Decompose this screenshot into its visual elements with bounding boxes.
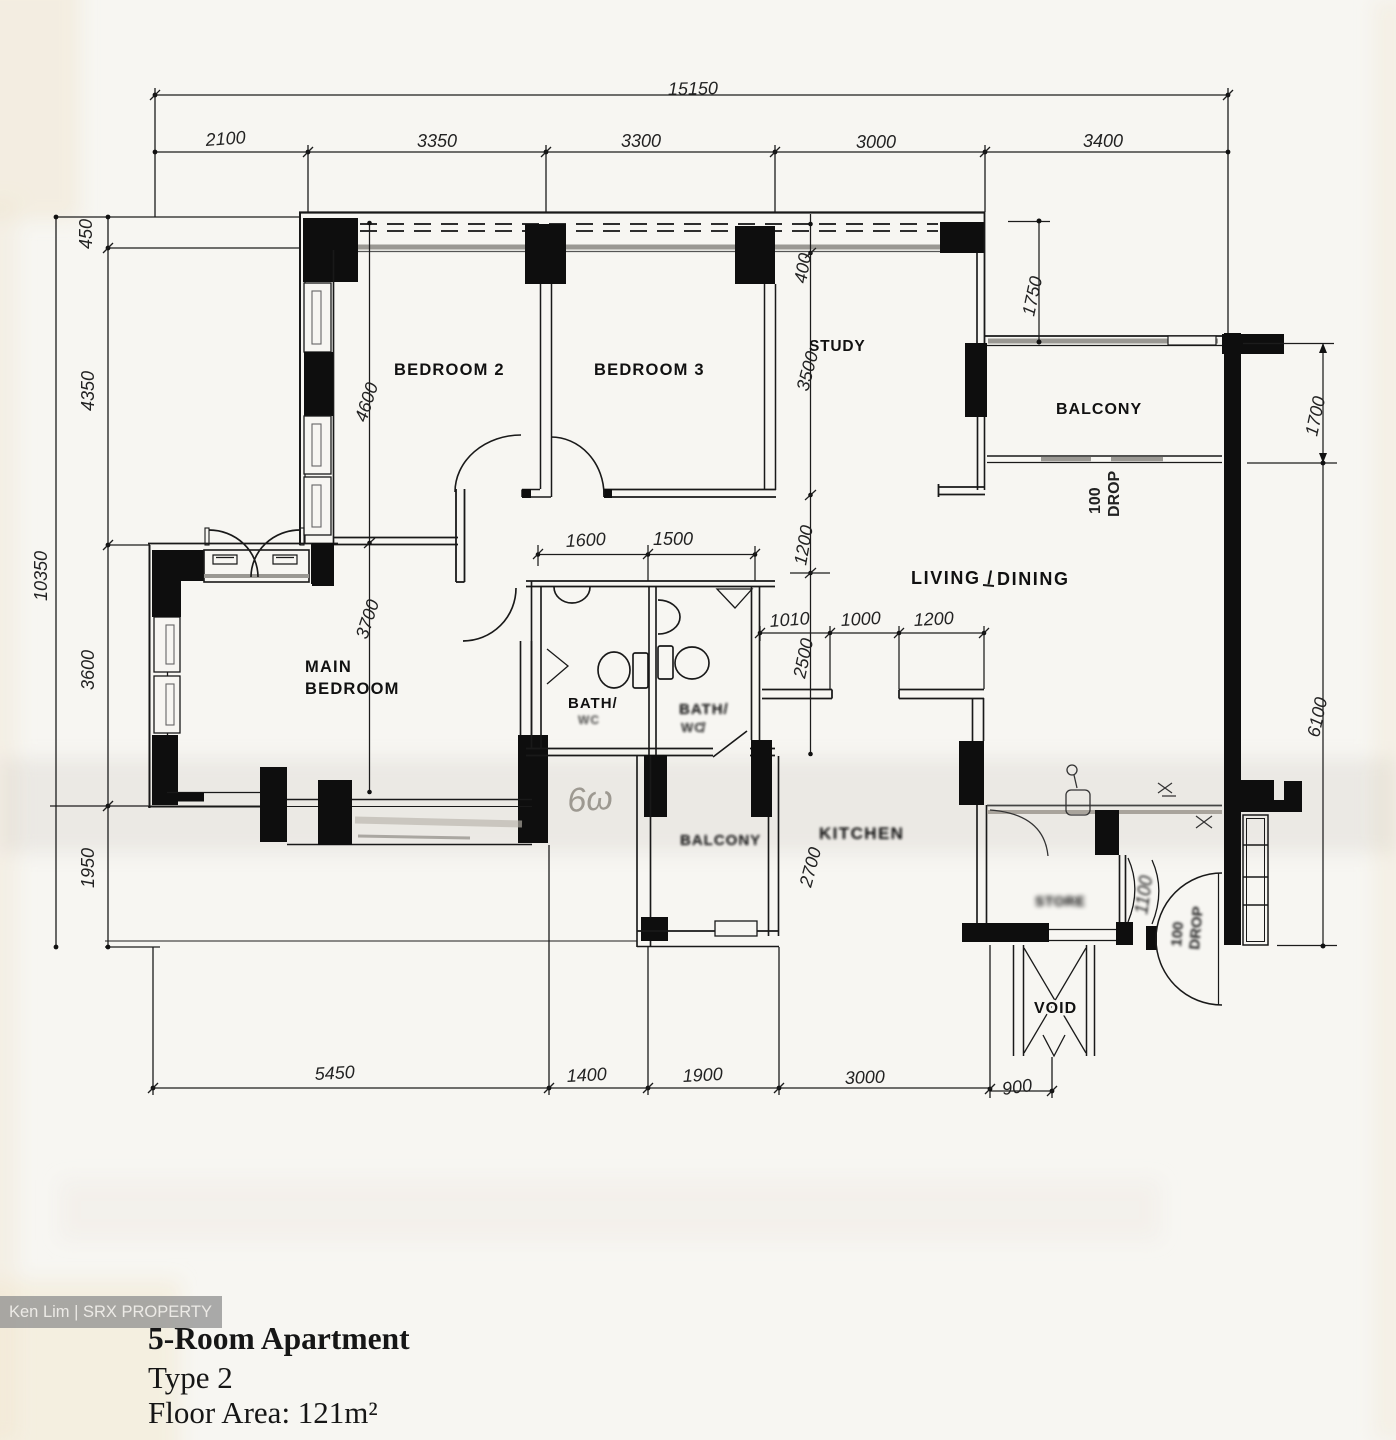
svg-text:3300: 3300 — [621, 131, 661, 151]
svg-text:BEDROOM: BEDROOM — [305, 680, 400, 698]
svg-text:15150: 15150 — [668, 78, 718, 99]
svg-text:MAIN: MAIN — [305, 658, 352, 676]
svg-text:Ken Lim | SRX PROPERTY: Ken Lim | SRX PROPERTY — [9, 1303, 212, 1321]
svg-text:KITCHEN: KITCHEN — [819, 824, 904, 843]
svg-text:3000: 3000 — [856, 132, 896, 152]
svg-text:450: 450 — [76, 219, 96, 249]
svg-text:100: 100 — [1168, 921, 1187, 947]
svg-text:BEDROOM 3: BEDROOM 3 — [594, 361, 705, 379]
svg-text:3600: 3600 — [78, 650, 98, 690]
svg-text:VOID: VOID — [1034, 1000, 1077, 1017]
svg-text:10350: 10350 — [31, 551, 51, 601]
svg-text:1950: 1950 — [78, 848, 98, 888]
svg-text:4350: 4350 — [78, 371, 98, 411]
svg-text:6ω: 6ω — [566, 779, 614, 820]
svg-text:3000: 3000 — [844, 1067, 885, 1088]
svg-text:BEDROOM 2: BEDROOM 2 — [394, 361, 505, 379]
svg-text:STORE: STORE — [1035, 893, 1085, 909]
svg-text:5450: 5450 — [314, 1062, 355, 1084]
svg-text:1200: 1200 — [913, 608, 954, 630]
svg-text:3400: 3400 — [1083, 131, 1123, 151]
svg-text:5-Room Apartment: 5-Room Apartment — [148, 1321, 410, 1356]
svg-text:2100: 2100 — [204, 127, 246, 150]
svg-text:STUDY: STUDY — [809, 338, 866, 355]
svg-text:BATH/: BATH/ — [568, 695, 618, 712]
svg-text:Floor Area: 121m²: Floor Area: 121m² — [148, 1395, 378, 1430]
svg-text:LIVING /: LIVING / — [911, 568, 994, 588]
svg-text:1010: 1010 — [769, 608, 810, 631]
svg-text:WC: WC — [578, 713, 600, 727]
svg-text:DINING: DINING — [997, 569, 1070, 589]
svg-text:3350: 3350 — [417, 131, 457, 151]
svg-text:900: 900 — [1001, 1075, 1034, 1099]
svg-text:1500: 1500 — [653, 529, 693, 549]
svg-text:BATH/: BATH/ — [679, 701, 729, 718]
svg-text:BALCONY: BALCONY — [680, 832, 761, 849]
svg-text:BALCONY: BALCONY — [1056, 401, 1142, 418]
svg-text:DROP: DROP — [1106, 470, 1123, 517]
svg-text:100: 100 — [1087, 487, 1104, 514]
svg-text:1600: 1600 — [565, 529, 606, 551]
svg-text:1400: 1400 — [566, 1064, 607, 1086]
svg-text:WC̸̄: WC̸̄ — [681, 720, 706, 735]
svg-text:1000: 1000 — [840, 608, 881, 630]
svg-text:1900: 1900 — [682, 1064, 723, 1086]
svg-text:Type 2: Type 2 — [148, 1360, 233, 1395]
